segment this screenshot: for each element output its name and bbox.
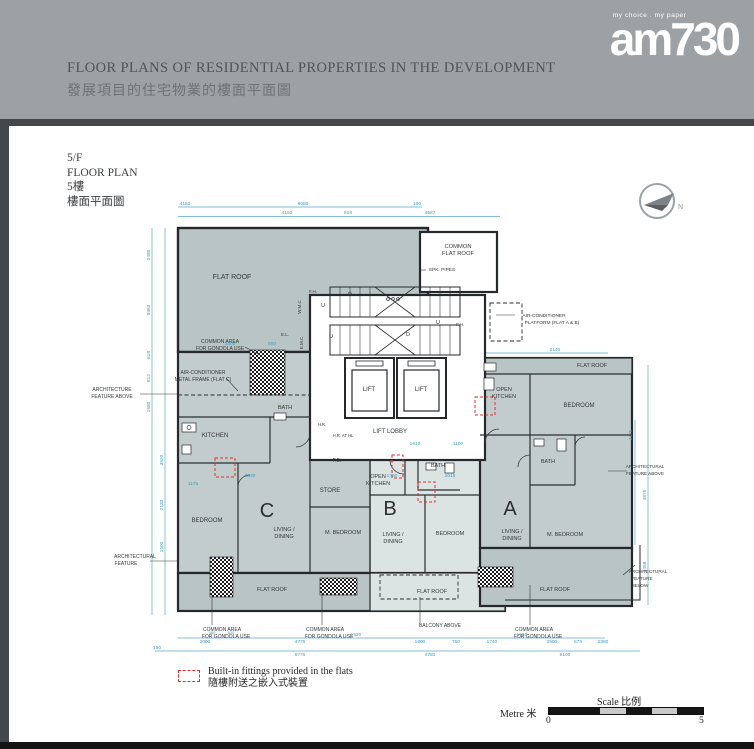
plan-label: FLAT ROOF xyxy=(213,274,252,281)
plan-label: STORE xyxy=(320,488,341,494)
plan-label: KITCHEN xyxy=(492,394,516,400)
plan-label: BELOW xyxy=(632,583,649,588)
dimension-label: 2500 xyxy=(547,639,558,645)
dimension-label: 1175 xyxy=(188,481,199,487)
plan-label: FLAT ROOF xyxy=(577,363,608,369)
plan-label: U xyxy=(321,303,325,309)
plan-label: FLAT ROOF xyxy=(257,587,288,593)
dimension-label: 1520 xyxy=(351,632,362,638)
plan-label: LIFT xyxy=(363,387,376,393)
plan-label: FEATURE xyxy=(631,576,652,581)
plan-label: FLAT ROOF xyxy=(417,589,448,595)
plan-label: AIR-CONDITIONER xyxy=(522,313,566,319)
plan-label: FOR GONDOLA USE xyxy=(305,634,354,640)
plan-label: H.R. xyxy=(318,422,326,427)
plan-label: KITCHEN xyxy=(366,481,390,487)
floor-plan-label: FLOOR PLAN xyxy=(67,166,138,181)
plan-label: LIVING / xyxy=(273,527,295,533)
dimension-label: 1580 xyxy=(146,401,152,412)
dimension-label: 460 xyxy=(209,630,216,635)
plan-label: ARCHITECTURAL xyxy=(114,554,156,560)
dimension-label: 2130 xyxy=(159,499,165,510)
bottom-edge-bar xyxy=(0,742,754,749)
plan-label: E.L. xyxy=(281,332,289,337)
plan-label: B xyxy=(383,498,396,520)
scale-title: Scale 比例 xyxy=(597,693,641,708)
plan-label: DINING xyxy=(502,536,521,542)
plan-label: METAL FRAME (FLAT C) xyxy=(175,377,232,383)
dimension-label: 6775 xyxy=(295,652,306,658)
scale-unit-label: Metre 米 xyxy=(500,705,536,720)
dimension-label: 812 xyxy=(146,374,152,382)
plan-label: COMMON AREA xyxy=(306,627,345,633)
am730-logo: my choice . my paper am730 xyxy=(610,12,738,59)
plan-label: DINING xyxy=(274,534,293,540)
dimension-label: 3520 xyxy=(159,454,165,465)
dimension-label: 1740 xyxy=(487,639,498,645)
building-footprint xyxy=(178,228,640,611)
plan-label: D xyxy=(406,332,410,338)
dimension-label: 1520 xyxy=(517,632,528,638)
floor-number: 5/F xyxy=(67,151,138,166)
legend: Built-in fittings provided in the flats … xyxy=(178,666,353,689)
dimension-label: 4780 xyxy=(425,652,436,658)
dimension-label: 820 xyxy=(228,630,235,635)
page-title-chinese: 發展項目的住宅物業的樓面平面圖 xyxy=(67,80,292,100)
plan-label: U xyxy=(329,334,333,340)
dimension-label: 2485 xyxy=(146,249,152,260)
plan-label: P.D. xyxy=(332,458,341,464)
dimension-label: 4587 xyxy=(425,210,436,216)
dimension-label: 675 xyxy=(574,639,582,645)
plan-label: BALCONY ABOVE xyxy=(419,623,462,629)
dimension-label: 2015 xyxy=(445,473,456,479)
plan-label: SPK. PIPES xyxy=(429,267,455,273)
legend-red-dashed-box xyxy=(178,670,200,682)
dimension-label: 818 xyxy=(344,210,352,216)
plan-label: A xyxy=(503,498,517,520)
plan-label: C xyxy=(260,500,274,522)
plan-label: LIVING / xyxy=(501,529,523,535)
scale-min-value: 0 xyxy=(546,716,551,726)
plan-label: F.H. xyxy=(309,289,317,294)
plan-label: BATH xyxy=(278,405,292,411)
scale-bar xyxy=(548,707,704,715)
dimension-label: 4875 xyxy=(642,489,648,500)
plan-label: AIR-CONDITIONER xyxy=(181,370,226,376)
legend-text-chinese: 隨樓附送之嵌入式裝置 xyxy=(208,678,353,690)
floor-plan-drawing: FLAT ROOFCOMMONFLAT ROOFSPK. PIPESAIR-CO… xyxy=(60,195,670,665)
plan-label: LIFT LOBBY xyxy=(373,429,407,435)
plan-label: DINING xyxy=(383,539,402,545)
dimension-label: 2380 xyxy=(598,639,609,645)
plan-label: FLAT ROOF xyxy=(540,587,571,593)
dimension-label: 100 xyxy=(413,201,421,207)
plan-label: COMMON xyxy=(444,244,471,250)
plan-label: LIVING / xyxy=(382,532,404,538)
plan-label: E.M.C xyxy=(299,336,304,349)
legend-text-en: Built-in fittings provided in the flats xyxy=(208,666,353,678)
dimension-label: 1610 xyxy=(410,441,421,447)
dimension-label: 4150 xyxy=(180,201,191,207)
page-title: FLOOR PLANS OF RESIDENTIAL PROPERTIES IN… xyxy=(67,60,555,77)
dimension-label: 1458 xyxy=(642,561,648,572)
plan-label: ARCHITECTURAL xyxy=(629,569,668,574)
page-header: FLOOR PLANS OF RESIDENTIAL PROPERTIES IN… xyxy=(0,0,754,119)
logo-text: am730 xyxy=(610,19,738,59)
dimension-label: 2330 xyxy=(245,473,256,479)
plan-label: BATH xyxy=(541,459,555,465)
dimension-label: 1800 xyxy=(415,639,426,645)
dimension-label: 1500 xyxy=(159,541,165,552)
dimension-label: 4775 xyxy=(295,639,306,645)
scale-bar-block: Scale 比例 Metre 米 0 5 xyxy=(500,693,720,733)
dimension-label: 150 xyxy=(153,645,161,651)
plan-label: OPEN xyxy=(370,474,386,480)
floor-number-chinese: 5樓 xyxy=(67,180,138,195)
plan-label: H.R. AT HL xyxy=(333,433,354,438)
dimension-label: 6100 xyxy=(560,652,571,658)
dimension-label: 3475 xyxy=(628,429,634,440)
plan-label: OPEN xyxy=(496,387,512,393)
plan-label: ARCHITECTURE xyxy=(92,387,132,393)
plan-label: W.M.C xyxy=(297,300,302,314)
plan-label: U xyxy=(436,320,440,326)
plan-label: BEDROOM xyxy=(563,403,594,409)
dimension-label: 1100 xyxy=(453,441,464,447)
plan-label: KITCHEN xyxy=(202,433,228,439)
dimension-label: 2140 xyxy=(550,347,561,353)
left-edge-bar xyxy=(0,126,9,742)
plan-label: FEATURE ABOVE xyxy=(91,394,133,400)
plan-label: FLAT ROOF xyxy=(442,251,474,257)
dimension-label: 3305 xyxy=(225,341,236,347)
dimension-label: 4150 xyxy=(282,210,293,216)
plan-label: PLATFORM (FLAT A & B) xyxy=(525,320,580,326)
plan-label: ARCHITECTURAL xyxy=(626,464,665,469)
plan-label: BEDROOM xyxy=(436,531,465,537)
dimension-label: 750 xyxy=(452,639,460,645)
plan-label: LIFT xyxy=(415,387,428,393)
dimension-label: 618 xyxy=(146,351,152,359)
scale-max-value: 5 xyxy=(699,716,704,726)
plan-label: FOR GONDOLA USE xyxy=(196,346,245,352)
plan-label: FEATURE xyxy=(115,561,139,567)
compass-north-label: N xyxy=(678,204,683,211)
dimension-label: 860 xyxy=(268,341,276,347)
plan-label: M. BEDROOM xyxy=(547,532,583,538)
dimension-label: 2000 xyxy=(200,639,211,645)
plan-label: BATH xyxy=(431,463,445,469)
page: { "header": { "title_en": "FLOOR PLANS O… xyxy=(0,0,754,749)
dimension-label: 8080 xyxy=(298,201,309,207)
dimension-label: 1750 xyxy=(387,473,398,479)
dimension-label: 5963 xyxy=(146,304,152,315)
header-divider xyxy=(0,119,754,126)
plan-label: F.H. xyxy=(456,322,464,327)
plan-label: BEDROOM xyxy=(191,518,222,524)
plan-label: D xyxy=(348,292,352,298)
plan-label: M. BEDROOM xyxy=(325,530,361,536)
plan-label: FEATURE ABOVE xyxy=(626,471,664,476)
